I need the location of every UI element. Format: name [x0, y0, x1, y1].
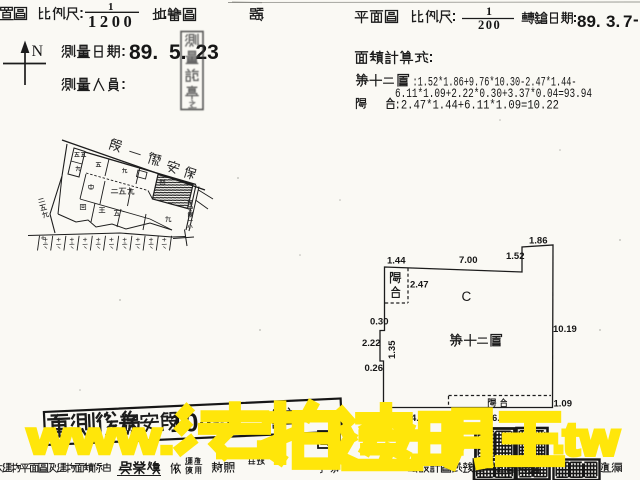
svg-text:2.47: 2.47 — [410, 280, 429, 291]
svg-text:7: 7 — [623, 12, 632, 31]
svg-text:7.00: 7.00 — [459, 255, 478, 266]
svg-text:C: C — [462, 289, 472, 304]
svg-text:1.35: 1.35 — [387, 340, 398, 359]
svg-text:0.26: 0.26 — [365, 363, 384, 374]
svg-text:10.19: 10.19 — [553, 324, 577, 335]
svg-text:1.44: 1.44 — [387, 256, 406, 267]
svg-text:N: N — [32, 43, 44, 60]
svg-text:www.: www. — [26, 412, 174, 464]
svg-text:5.: 5. — [169, 41, 187, 64]
svg-text:0.30: 0.30 — [370, 317, 389, 328]
svg-text:1200: 1200 — [88, 12, 135, 31]
svg-text:1: 1 — [486, 4, 492, 18]
svg-text:2.22: 2.22 — [362, 338, 381, 349]
svg-text:89.: 89. — [129, 41, 158, 64]
svg-text:200: 200 — [478, 18, 501, 32]
svg-text:1.09: 1.09 — [554, 399, 573, 410]
svg-text:1.86: 1.86 — [529, 236, 548, 247]
svg-text:-: - — [633, 10, 639, 29]
svg-text:3.: 3. — [606, 12, 620, 31]
svg-text:89.: 89. — [577, 12, 601, 31]
svg-text:1.52: 1.52 — [506, 251, 525, 262]
svg-text:tw: tw — [563, 413, 619, 465]
svg-text::2.47*1.44+6.11*1.09=10.22: :2.47*1.44+6.11*1.09=10.22 — [395, 98, 560, 113]
svg-text:6.: 6. — [492, 413, 500, 424]
